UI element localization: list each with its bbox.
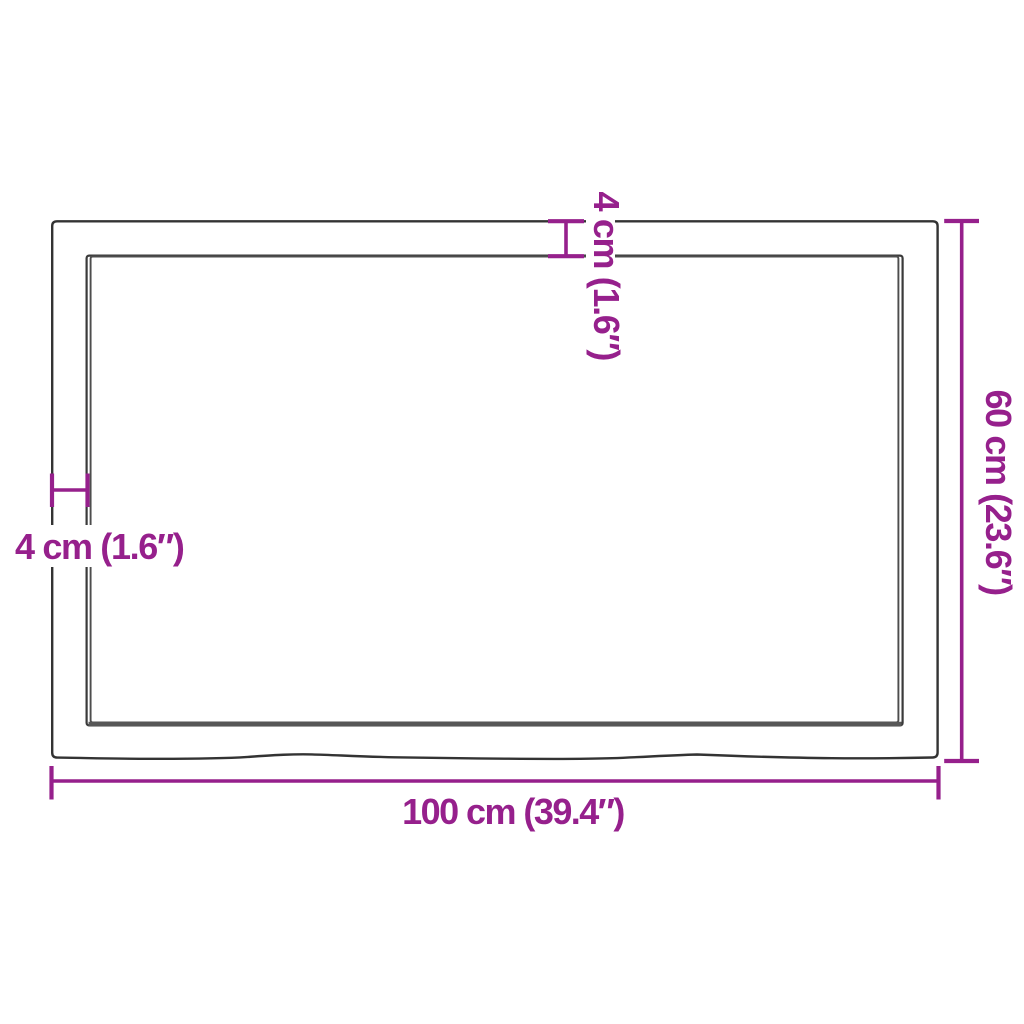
svg-text:4 cm (1.6″): 4 cm (1.6″) — [15, 526, 184, 567]
svg-text:100 cm (39.4″): 100 cm (39.4″) — [402, 791, 624, 832]
svg-text:60 cm (23.6″): 60 cm (23.6″) — [978, 390, 1019, 596]
svg-text:4 cm (1.6″): 4 cm (1.6″) — [586, 192, 627, 361]
